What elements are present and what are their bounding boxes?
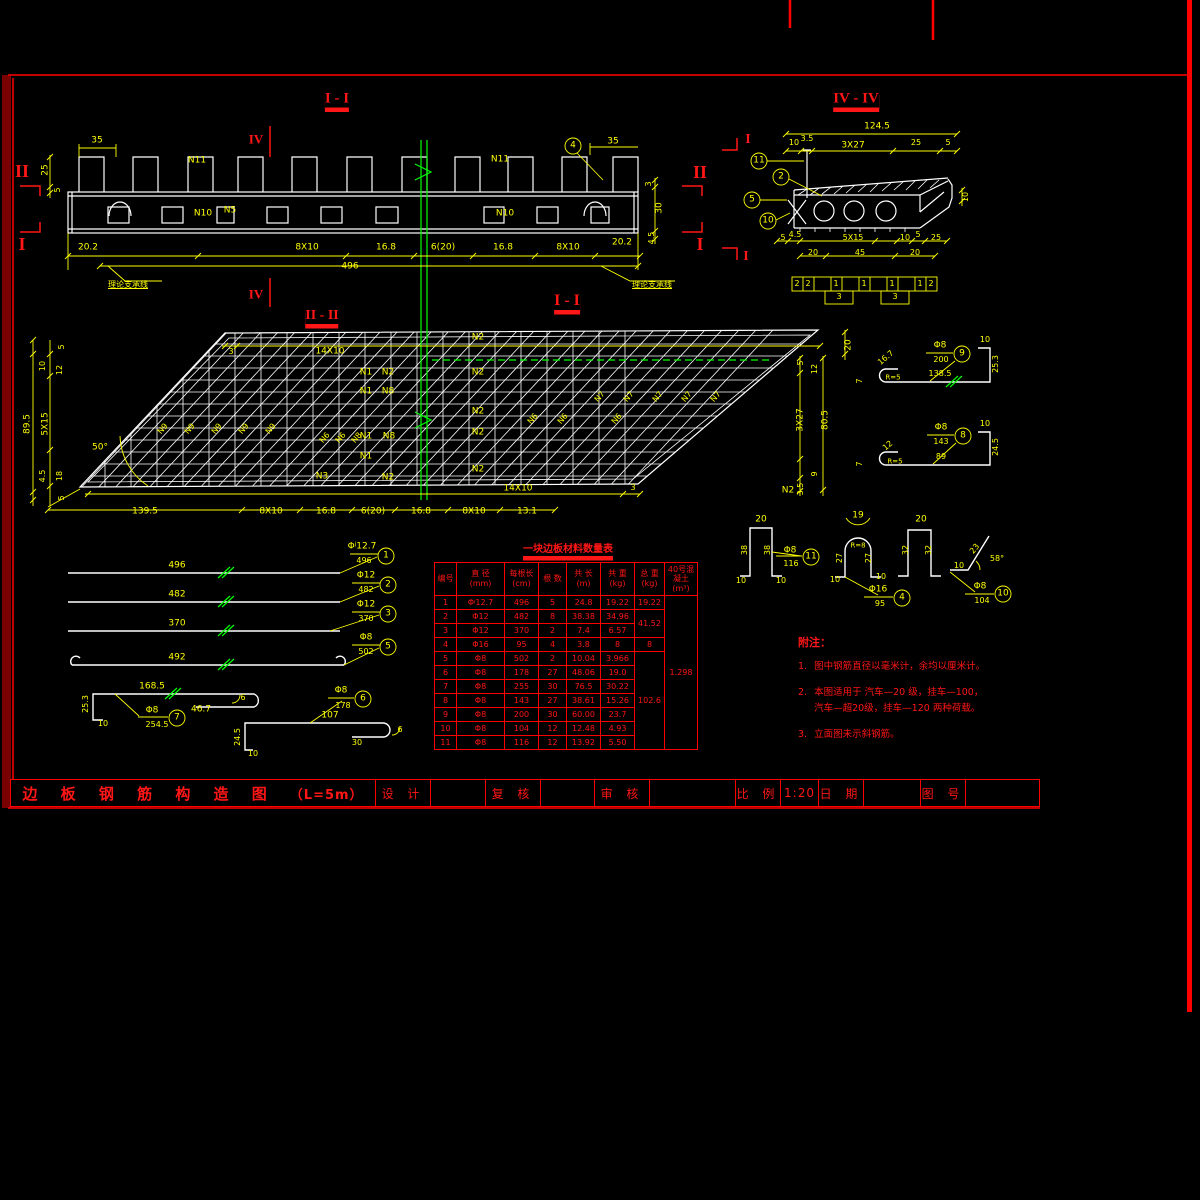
bar-label: N2	[472, 408, 484, 417]
dim-label: 496	[168, 562, 185, 571]
dim-label: 2	[805, 280, 810, 288]
table-header: 每根长 (cm)	[505, 563, 539, 596]
dim-label: 20.2	[78, 244, 98, 253]
bar-label: N2	[782, 487, 794, 496]
dim-label: 9	[811, 471, 819, 476]
table-cell: Φ12	[457, 610, 505, 624]
table-cell: 34.96	[601, 610, 635, 624]
dim-label: 25	[931, 234, 941, 242]
notes-list: 1.图中钢筋直径以毫米计，余均以厘米计。2.本图适用于 汽车—20 级，挂车—1…	[798, 659, 1068, 744]
dim-label: 1	[833, 280, 838, 288]
bar-label: N11	[188, 157, 206, 166]
table-cell: 9	[435, 708, 457, 722]
dim-label: 3	[892, 293, 897, 301]
dim-label: 482	[168, 591, 185, 600]
bar-label: N1	[360, 453, 372, 462]
dim-label: 5X15	[42, 412, 51, 435]
dim-label: Φ8	[146, 707, 159, 716]
dim-label: 20	[845, 339, 854, 350]
dim-label: 8X10	[462, 508, 485, 517]
dim-label: 370	[358, 615, 373, 623]
view-title-elevation: I - I	[325, 92, 349, 109]
dim-label: 8X10	[259, 508, 282, 517]
dim-label: Φ8	[335, 687, 348, 696]
table-cell: 4	[435, 638, 457, 652]
notes-heading: 附注：	[798, 634, 1068, 650]
bar-label: N10	[194, 210, 212, 219]
dim-label: 496	[356, 557, 371, 565]
table-cell: 255	[505, 680, 539, 694]
bar-label: N1	[360, 369, 372, 378]
callout-number: 11	[805, 553, 816, 562]
drawing-subtitle: （L=5m）	[290, 784, 364, 803]
dim-label: 4.5	[789, 231, 802, 239]
bar-label: N1	[360, 388, 372, 397]
callout-number: 11	[753, 157, 764, 166]
section-marker: I	[745, 133, 750, 147]
table-cell: 30.22	[601, 680, 635, 694]
bar-label: N8	[383, 433, 395, 442]
dim-label: 1	[917, 280, 922, 288]
cad-drawing-sheet: I - IIV - IVII - III - IIIIIIIIVIVII3525…	[0, 0, 1200, 1200]
note-item: 1.图中钢筋直径以毫米计，余均以厘米计。	[798, 659, 1068, 676]
dim-label: 168.5	[139, 683, 165, 692]
drawing-title: 边 板 钢 筋 构 造 图	[22, 783, 275, 804]
dim-label: 20	[910, 249, 920, 257]
dim-label: 10	[830, 576, 840, 584]
table-row: 2Φ12482838.3834.9641.52	[435, 610, 698, 624]
dim-label: 35	[91, 137, 102, 146]
table-row: 4Φ169543.888	[435, 638, 698, 652]
dim-label: 10	[248, 750, 258, 758]
callout-number: 5	[749, 196, 755, 205]
dim-label: 30	[656, 202, 665, 213]
callout-number: 2	[385, 581, 391, 590]
dim-label: 32	[902, 545, 910, 555]
dim-label: 138.5	[929, 370, 952, 378]
dim-label: 8X10	[295, 244, 318, 253]
dim-label: 2	[928, 280, 933, 288]
dim-label: 5X15	[843, 234, 864, 242]
dim-label: 95	[875, 600, 885, 608]
dim-label: Φ8	[934, 342, 947, 351]
field-number-label: 图 号	[921, 780, 966, 806]
dim-label: 1	[861, 280, 866, 288]
section-marker: IV	[249, 133, 263, 146]
dim-label: 6(20)	[361, 508, 385, 517]
dim-label: 38	[764, 545, 772, 555]
table-cell: 496	[505, 596, 539, 610]
field-scale-value: 1:20	[781, 780, 819, 806]
table-header-row: 编号直 径 (mm)每根长 (cm)根 数共 长 (m)共 重 (kg)总 重 …	[435, 563, 698, 596]
table-cell: Φ8	[457, 722, 505, 736]
dim-label: Φ8	[974, 583, 987, 592]
dim-label: 3	[630, 484, 635, 492]
dim-label: R=5	[887, 459, 902, 466]
table-cell: 502	[505, 652, 539, 666]
table-cell: Φ8	[457, 736, 505, 750]
dim-label: 7	[856, 461, 864, 466]
dim-label: 80.5	[822, 410, 831, 430]
dim-label: 10	[900, 234, 910, 242]
dim-label: 8X10	[556, 244, 579, 253]
table-cell: 38.38	[567, 610, 601, 624]
dim-label: 46.7	[191, 706, 211, 715]
dim-label: 10	[962, 192, 970, 202]
dim-label: 20.2	[612, 239, 632, 248]
dim-label: 32	[925, 545, 933, 555]
callout-number: 6	[360, 695, 366, 704]
table-cell: 48.06	[567, 666, 601, 680]
dim-label: 116	[783, 560, 798, 568]
dim-label: 27	[865, 553, 873, 563]
dim-label: 12	[56, 365, 64, 375]
dim-label: 19	[852, 512, 863, 521]
field-date-value	[864, 780, 921, 806]
dim-label: 6	[397, 726, 402, 734]
dim-label: 3	[836, 293, 841, 301]
dim-label: 25.3	[82, 695, 90, 713]
dim-label: 5	[797, 360, 805, 365]
table-header: 根 数	[539, 563, 567, 596]
dim-label: 1	[889, 280, 894, 288]
dim-label: 50°	[92, 444, 108, 453]
dim-label: 13.1	[517, 508, 537, 517]
dim-label: Φ8	[935, 424, 948, 433]
dim-label: 25.3	[992, 355, 1000, 373]
callout-number: 3	[385, 610, 391, 619]
bar-label: N2	[472, 334, 484, 343]
table-cell: 2	[435, 610, 457, 624]
dim-label: 10	[954, 562, 964, 570]
dim-label: 370	[168, 620, 185, 629]
table-cell: 2	[539, 624, 567, 638]
table-cell: Φ8	[457, 652, 505, 666]
dim-label: 10	[876, 573, 886, 581]
table-cell: 5	[435, 652, 457, 666]
dim-label: 254.5	[146, 721, 169, 729]
table-cell: Φ16	[457, 638, 505, 652]
table-cell: 13.92	[567, 736, 601, 750]
sheet-frame	[2, 0, 1192, 1012]
table-cell: 143	[505, 694, 539, 708]
table-cell: 19.0	[601, 666, 635, 680]
section-marker: I	[696, 235, 703, 253]
drawing-title-cell: 边 板 钢 筋 构 造 图 （L=5m）	[11, 780, 376, 806]
support-line-label: 理论支承线	[632, 281, 672, 289]
callout-number: 1	[383, 552, 389, 561]
dim-label: 20	[915, 516, 926, 525]
table-cell: 11	[435, 736, 457, 750]
table-cell: 1	[435, 596, 457, 610]
dim-label: 2	[794, 280, 799, 288]
field-design-label: 设 计	[376, 780, 431, 806]
dim-label: 124.5	[864, 123, 890, 132]
table-cell: 102.6	[635, 652, 665, 750]
elevation-linework	[68, 157, 638, 233]
table-cell: 7.4	[567, 624, 601, 638]
table-cell: 30	[539, 708, 567, 722]
bar-label: N2	[472, 369, 484, 378]
field-check-label: 复 核	[486, 780, 541, 806]
table-cell: 12.48	[567, 722, 601, 736]
table-cell: 8	[635, 638, 665, 652]
table-cell: 8	[539, 610, 567, 624]
table-cell: 200	[505, 708, 539, 722]
title-block: 边 板 钢 筋 构 造 图 （L=5m） 设 计 复 核 审 核 比 例 1:2…	[10, 779, 1040, 807]
table-cell: 8	[601, 638, 635, 652]
table-cell: Φ8	[457, 666, 505, 680]
bar-label: N5	[224, 207, 236, 216]
table-cell: 38.61	[567, 694, 601, 708]
table-cell: 10	[435, 722, 457, 736]
table-cell: 12	[539, 736, 567, 750]
dim-label: Φ8	[360, 634, 373, 643]
table-cell: 4	[539, 638, 567, 652]
table-cell: 10.04	[567, 652, 601, 666]
dim-label: 10	[980, 420, 990, 428]
callout-number: 9	[959, 350, 965, 359]
table-cell: 1.298	[665, 596, 698, 750]
section-marker: I	[18, 235, 25, 253]
table-cell: 104	[505, 722, 539, 736]
bar-label: N2	[472, 429, 484, 438]
table-cell: 3.966	[601, 652, 635, 666]
table-cell: 4.93	[601, 722, 635, 736]
dim-label: 3X27	[841, 142, 864, 151]
dim-label: 14X10	[503, 485, 532, 494]
section-marker: II	[15, 162, 29, 180]
dim-label: 58°	[990, 555, 1004, 563]
table-header: 直 径 (mm)	[457, 563, 505, 596]
field-review-value	[650, 780, 736, 806]
dim-label: 492	[168, 654, 185, 663]
table-cell: 3.8	[567, 638, 601, 652]
dim-label: 3.5	[801, 135, 814, 143]
dim-label: 139.5	[132, 508, 158, 517]
table-cell: 95	[505, 638, 539, 652]
dim-label: 25	[911, 139, 921, 147]
section-marker: I	[743, 250, 748, 264]
dim-label: 5	[780, 234, 785, 242]
table-header: 共 重 (kg)	[601, 563, 635, 596]
dim-label: 89.5	[24, 414, 33, 434]
field-date-label: 日 期	[819, 780, 864, 806]
callout-number: 10	[997, 590, 1008, 599]
bar-label: N8	[382, 388, 394, 397]
dim-label: 178	[335, 702, 350, 710]
dim-label: 3.5	[797, 483, 805, 496]
bar-label: N11	[491, 156, 509, 165]
callout-number: 4	[899, 594, 905, 603]
table-row: 1Φʲ12.7496524.819.2219.221.298	[435, 596, 698, 610]
field-scale-label: 比 例	[736, 780, 781, 806]
notes-block: 附注： 1.图中钢筋直径以毫米计，余均以厘米计。2.本图适用于 汽车—20 级，…	[798, 634, 1068, 753]
field-design-value	[431, 780, 486, 806]
table-cell: 76.5	[567, 680, 601, 694]
material-quantity-table: 编号直 径 (mm)每根长 (cm)根 数共 长 (m)共 重 (kg)总 重 …	[434, 562, 698, 750]
table-header: 40号混凝土 (m³)	[665, 563, 698, 596]
dim-label: R=5	[885, 375, 900, 382]
table-cell: 178	[505, 666, 539, 680]
view-title-plan: II - II	[305, 309, 338, 325]
dim-label: 16.8	[411, 508, 431, 517]
field-number-value	[966, 780, 1039, 806]
dim-label: 3X27	[797, 408, 806, 431]
dim-label: 3	[645, 181, 653, 186]
dim-label: 27	[836, 553, 844, 563]
table-cell: 3	[435, 624, 457, 638]
bar-label: N10	[496, 210, 514, 219]
table-cell: Φ8	[457, 708, 505, 722]
dim-label: 5	[915, 231, 920, 239]
table-cell: Φ12	[457, 624, 505, 638]
field-check-value	[541, 780, 595, 806]
bar-label: N3	[316, 473, 328, 482]
dim-label: 14X10	[315, 348, 344, 357]
dim-label: 10	[736, 577, 746, 585]
callout-number: 8	[960, 432, 966, 441]
table-header: 共 长 (m)	[567, 563, 601, 596]
table-cell: 6.57	[601, 624, 635, 638]
table-cell: Φ8	[457, 680, 505, 694]
table-cell: 15.26	[601, 694, 635, 708]
dim-label: 143	[933, 438, 948, 446]
note-item: 2.本图适用于 汽车—20 级，挂车—100， 汽车—超20级，挂车—120 两…	[798, 685, 1068, 718]
dim-label: 5	[58, 495, 66, 500]
dim-label: 18	[56, 471, 64, 481]
table-cell: 41.52	[635, 610, 665, 638]
view-title-section-iv: IV - IV	[833, 92, 879, 109]
table-cell: 370	[505, 624, 539, 638]
dim-label: 35	[607, 138, 618, 147]
table-cell: 5.50	[601, 736, 635, 750]
bar-label: N2	[382, 474, 394, 483]
table-cell: Φʲ12.7	[457, 596, 505, 610]
dim-label: Φ16	[869, 586, 888, 595]
table-cell: 23.7	[601, 708, 635, 722]
callout-number: 5	[385, 643, 391, 652]
dim-label: 10	[39, 361, 47, 371]
dim-label: 502	[358, 648, 373, 656]
dim-label: 38	[741, 545, 749, 555]
dim-label: 16.8	[376, 244, 396, 253]
table-cell: 2	[539, 652, 567, 666]
field-review-label: 审 核	[595, 780, 650, 806]
dim-label: 24.5	[234, 728, 242, 746]
dim-label: 4.5	[39, 470, 47, 483]
dim-label: Φʲ12.7	[348, 543, 377, 552]
note-item: 3.立面图未示斜钢筋。	[798, 727, 1068, 744]
table-cell: 7	[435, 680, 457, 694]
table-cell: 27	[539, 694, 567, 708]
table-cell: 24.8	[567, 596, 601, 610]
table-header: 总 重 (kg)	[635, 563, 665, 596]
table-cell: 8	[435, 694, 457, 708]
dim-label: 12	[811, 364, 819, 374]
dim-label: 10	[776, 577, 786, 585]
dim-label: 200	[933, 356, 948, 364]
table-cell: 482	[505, 610, 539, 624]
dim-label: Φ12	[357, 572, 376, 581]
dim-label: 496	[341, 263, 358, 272]
dim-label: 45	[855, 249, 865, 257]
dim-label: 5	[945, 139, 950, 147]
table-cell: 116	[505, 736, 539, 750]
table-cell: 60.00	[567, 708, 601, 722]
dim-label: 4.5	[648, 232, 656, 245]
bar-label: N2	[472, 466, 484, 475]
dim-label: 20	[808, 249, 818, 257]
support-line-label: 理论支承线	[108, 281, 148, 289]
table-header: 编号	[435, 563, 457, 596]
bar-label: N2	[382, 369, 394, 378]
dim-label: 5	[58, 344, 66, 349]
section-marker: IV	[249, 288, 263, 301]
dim-label: 6(20)	[431, 244, 455, 253]
callout-number: 10	[762, 217, 773, 226]
table-title: 一块边板材料数量表	[523, 545, 613, 557]
dim-label: 16.8	[493, 244, 513, 253]
section-marker: II	[693, 163, 707, 181]
plan-linework	[60, 330, 830, 492]
dim-label: 5	[54, 187, 62, 192]
dim-label: 482	[358, 586, 373, 594]
table-cell: 30	[539, 680, 567, 694]
section-cut-title: I - I	[554, 293, 580, 311]
table-cell: 27	[539, 666, 567, 680]
dim-label: 30	[352, 739, 362, 747]
dim-label: 10	[98, 720, 108, 728]
table-cell: Φ8	[457, 694, 505, 708]
dim-label: 24.5	[992, 438, 1000, 456]
dim-label: 16.8	[316, 508, 336, 517]
dim-label: 20	[755, 516, 766, 525]
dim-label: R=8	[850, 543, 865, 550]
table-cell: 5	[539, 596, 567, 610]
table-cell: 6	[435, 666, 457, 680]
dim-label: Φ12	[357, 601, 376, 610]
dim-label: 6	[240, 694, 245, 702]
dim-label: 7	[856, 378, 864, 383]
dim-label: 10	[980, 336, 990, 344]
dim-label: 89	[936, 453, 946, 461]
dim-label: 3	[228, 348, 233, 356]
callout-number: 2	[778, 173, 784, 182]
dim-label: 10	[789, 139, 799, 147]
callout-number: 7	[174, 714, 180, 723]
dim-label: Φ8	[784, 547, 797, 556]
callout-number: 4	[570, 142, 576, 151]
dim-label: 25	[42, 164, 51, 175]
dim-label: 107	[321, 712, 338, 721]
table-cell: 12	[539, 722, 567, 736]
dim-label: 104	[974, 597, 989, 605]
table-row: 5Φ8502210.043.966102.6	[435, 652, 698, 666]
table-cell: 19.22	[601, 596, 635, 610]
table-cell: 19.22	[635, 596, 665, 610]
